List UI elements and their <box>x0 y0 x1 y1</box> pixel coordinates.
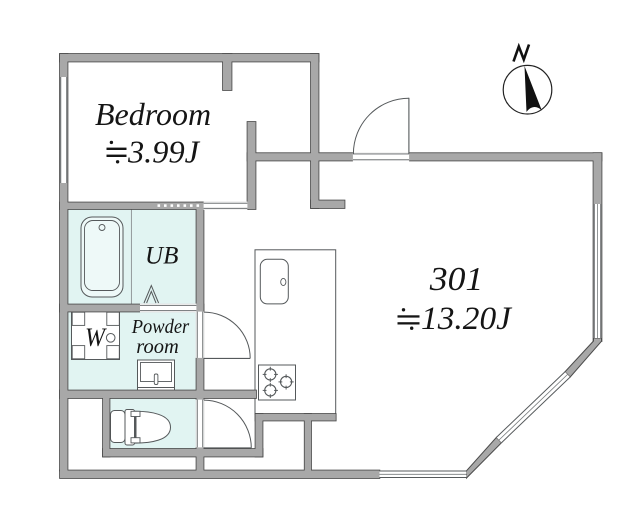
svg-text:13.20J: 13.20J <box>421 301 513 337</box>
svg-text:room: room <box>136 336 179 358</box>
svg-text:UB: UB <box>145 243 178 270</box>
svg-text:Bedroom: Bedroom <box>95 96 211 132</box>
svg-text:3.99J: 3.99J <box>127 134 201 170</box>
svg-text:W: W <box>85 323 107 352</box>
svg-text:Powder: Powder <box>131 316 190 338</box>
svg-text:301: 301 <box>429 261 484 298</box>
